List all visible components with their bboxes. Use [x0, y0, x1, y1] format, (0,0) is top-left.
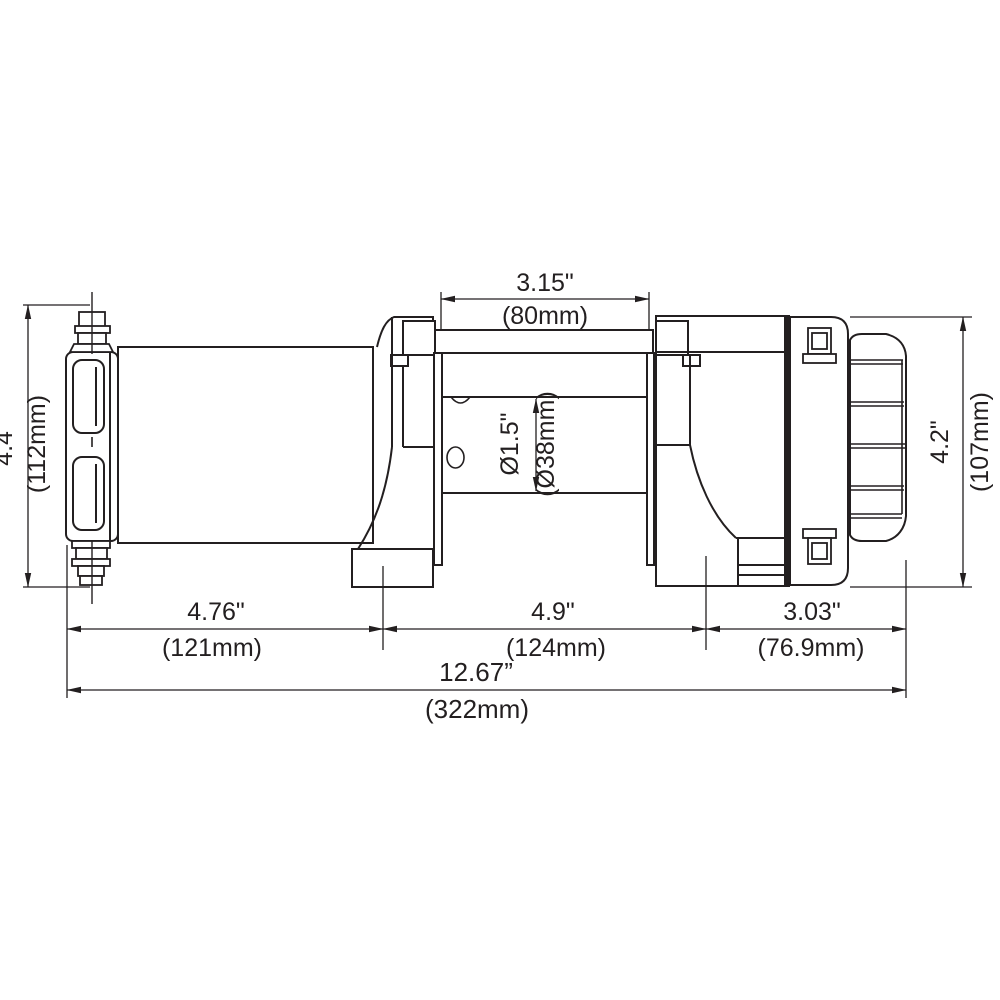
label-motor-height-mm: (112mm): [23, 395, 51, 493]
cover-bolt-top: [803, 328, 836, 363]
label-housing-height-mm: (107mm): [966, 392, 994, 492]
label-motor-height-in: 4.4": [0, 422, 18, 466]
label-drum-length-in: 3.15": [516, 269, 574, 297]
label-motor-section-mm: (121mm): [162, 634, 262, 662]
bracket-foot-left: [352, 549, 433, 587]
label-drum-length-mm: (80mm): [502, 302, 588, 330]
label-gear-section-mm: (76.9mm): [758, 634, 865, 662]
label-drum-section-mm: (124mm): [506, 634, 606, 662]
label-drum-diameter-in: Ø1.5": [496, 412, 524, 475]
gear-end-cover: [790, 317, 848, 585]
label-gear-section-in: 3.03": [783, 598, 841, 626]
gear-housing: [656, 315, 787, 587]
winch-dimension-drawing: 3.15" (80mm) 4.4" (112mm) 4.2" (107mm) Ø…: [0, 0, 1000, 1000]
drawing-canvas: 3.15" (80mm) 4.4" (112mm) 4.2" (107mm) Ø…: [0, 0, 1000, 1000]
label-overall-length-mm: (322mm): [425, 694, 529, 724]
terminal-stud-bottom: [72, 541, 110, 604]
cover-bolt-bottom: [803, 529, 836, 564]
clutch-knob: [850, 334, 906, 541]
label-housing-height-in: 4.2": [926, 420, 954, 464]
tie-bar-clamp-left: [403, 321, 435, 355]
label-drum-section-in: 4.9": [531, 598, 575, 626]
label-overall-length-in: 12.67”: [439, 657, 513, 687]
label-motor-section-in: 4.76": [187, 598, 245, 626]
drum-flange-left: [434, 353, 442, 565]
drum-hole: [447, 447, 464, 468]
motor-housing: [118, 347, 373, 543]
drum-flange-right: [647, 353, 654, 565]
label-drum-diameter-mm: (Ø38mm): [532, 391, 560, 497]
motor-end-cap: [66, 352, 118, 541]
terminal-stud-top: [70, 292, 113, 354]
tie-bar: [435, 330, 653, 353]
